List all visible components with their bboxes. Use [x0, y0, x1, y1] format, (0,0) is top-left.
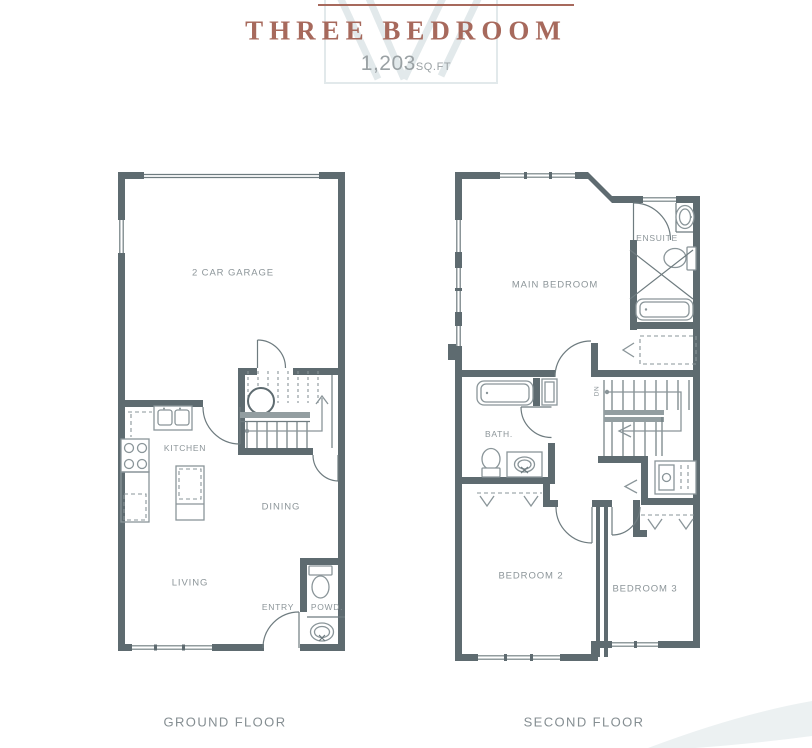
area-value: 1,203 [361, 52, 416, 75]
area-unit: SQ.FT [416, 61, 451, 73]
front-entry-door [263, 612, 299, 648]
bedroom3-closet [641, 515, 696, 529]
main-bedroom-wardrobe [623, 336, 696, 364]
caption-second-floor: SECOND FLOOR [524, 715, 645, 730]
linen-closet-chevron [625, 480, 637, 493]
room-label-garage: 2 CAR GARAGE [192, 268, 274, 279]
room-label-bedroom3: BEDROOM 3 [612, 584, 677, 595]
ensuite-window [643, 198, 676, 201]
stove [121, 439, 149, 472]
ensuite-fixtures [630, 203, 696, 320]
main-bedroom-door [555, 341, 591, 377]
room-label-main-bedroom: MAIN BEDROOM [512, 280, 598, 291]
room-label-ensuite: ENSUITE [636, 233, 678, 243]
stairs-up [240, 371, 332, 448]
kitchen-counter [128, 412, 152, 437]
bedroom2-closet [477, 493, 542, 506]
bath-fixtures [477, 379, 557, 477]
title-rule [318, 4, 574, 6]
corner-arc-decoration [648, 701, 812, 748]
room-label-powder: POWD. [311, 602, 343, 612]
washer-dryer [655, 461, 696, 494]
bath-door [521, 407, 552, 438]
garage-entry-door [258, 340, 286, 368]
kitchen-island [176, 466, 204, 520]
room-label-living: LIVING [172, 578, 209, 589]
garage-door [144, 175, 319, 178]
room-label-dining: DINING [262, 502, 301, 513]
plan-area: 1,203SQ.FT [361, 52, 451, 76]
floor-plan-sheet: THREE BEDROOM 1,203SQ.FT 2 CAR GARAGE KI… [0, 0, 812, 748]
bedroom2-window [478, 654, 560, 661]
ground-floor-plan [118, 172, 345, 651]
caption-ground-floor: GROUND FLOOR [164, 715, 287, 730]
bedroom2-door [556, 507, 592, 543]
stairs-down [604, 380, 689, 456]
room-label-bedroom2: BEDROOM 2 [498, 571, 563, 582]
fridge-cabinet [121, 472, 149, 522]
room-label-entry: ENTRY [262, 602, 294, 612]
room-label-bath: BATH. [485, 429, 513, 439]
plan-linework [0, 0, 812, 748]
plan-title: THREE BEDROOM [245, 16, 567, 47]
main-bedroom-windows [455, 172, 575, 346]
garage-window [118, 218, 125, 255]
bedroom3-window [612, 641, 658, 648]
dining-door [313, 455, 338, 481]
living-window [132, 645, 212, 651]
kitchen-door [203, 407, 240, 444]
kitchen-sink [154, 406, 192, 430]
room-label-kitchen: KITCHEN [164, 443, 206, 453]
stairs-down-label: DN [594, 386, 601, 396]
